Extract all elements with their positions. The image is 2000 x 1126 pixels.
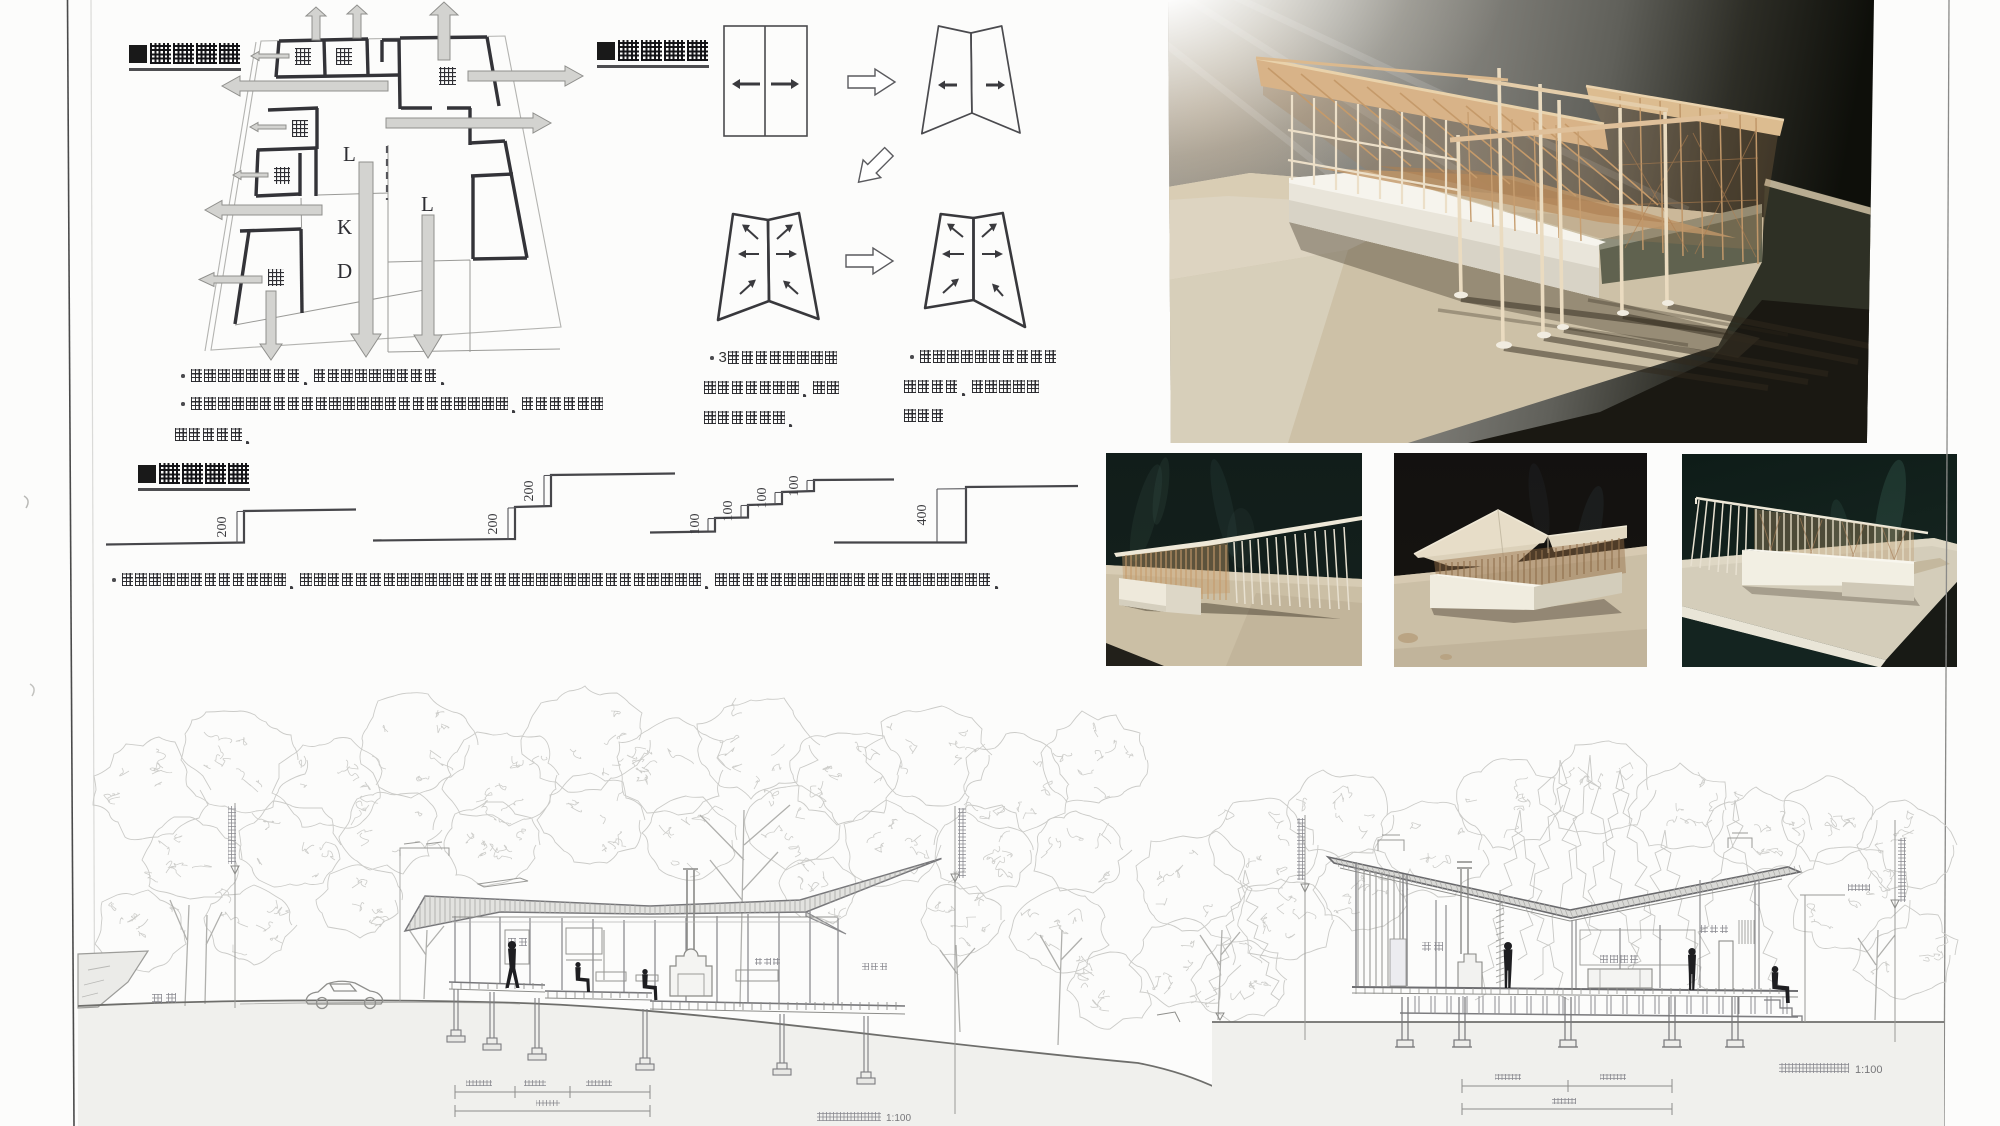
svg-text:200: 200 <box>486 514 501 535</box>
svg-text:100: 100 <box>721 501 736 522</box>
svg-text:200: 200 <box>215 517 230 538</box>
svg-text:L: L <box>421 192 434 216</box>
svg-text:K: K <box>337 215 352 239</box>
svg-text:1:100: 1:100 <box>1855 1064 1883 1076</box>
svg-text:400: 400 <box>915 505 930 526</box>
svg-text:100: 100 <box>755 488 770 509</box>
svg-text:100: 100 <box>787 476 802 497</box>
svg-text:1:100: 1:100 <box>886 1113 911 1124</box>
svg-text:D: D <box>337 259 352 283</box>
svg-text:100: 100 <box>688 514 703 535</box>
svg-text:L: L <box>343 142 356 166</box>
svg-text:200: 200 <box>522 481 537 502</box>
